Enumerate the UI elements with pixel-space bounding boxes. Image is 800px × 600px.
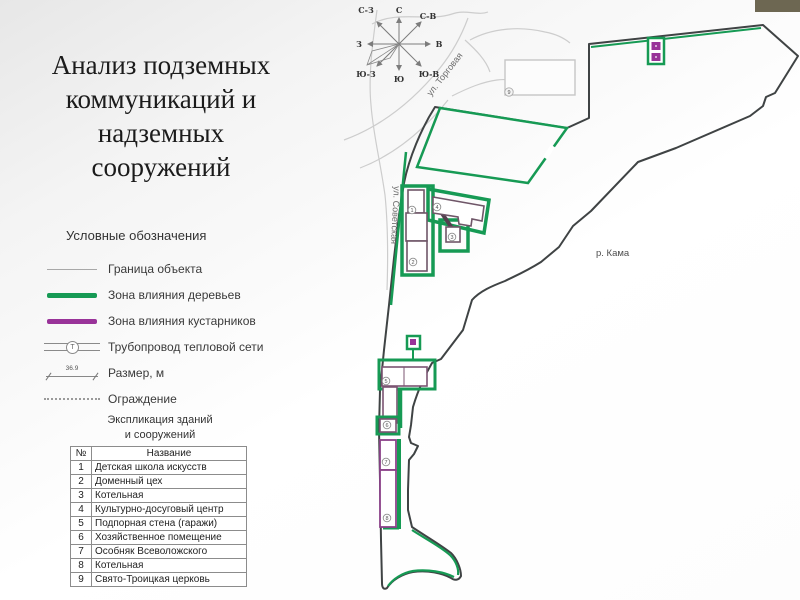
shrub-zone-mark [410, 339, 416, 345]
building-1-school [406, 213, 427, 241]
compass-ray-ne [399, 22, 421, 44]
building-marker: 3 [448, 233, 456, 241]
compass-label-east: В [436, 39, 443, 49]
marker-number: 5 [384, 379, 387, 385]
building-marker: 6 [383, 421, 391, 429]
building-9-church [505, 60, 575, 95]
parallelogram-gap [545, 146, 553, 158]
compass-label-northeast: С-В [420, 11, 437, 21]
compass-ray-sw [377, 44, 399, 66]
building-marker: 2 [409, 258, 417, 266]
building-marker: 4 [433, 203, 441, 211]
building-marker: 5 [382, 377, 390, 385]
compass-label-west: З [356, 39, 362, 49]
marker-number: 1 [410, 208, 413, 214]
marker-number: 4 [435, 205, 438, 211]
compass-label-south: Ю [394, 74, 404, 84]
compass-label-southwest: Ю-З [356, 69, 376, 79]
compass-ray-nw [377, 22, 399, 44]
marker-number: 6 [385, 423, 388, 429]
building-2-blast-shop [407, 241, 427, 271]
building-marker: 7 [382, 458, 390, 466]
compass-label-north: С [396, 5, 402, 15]
site-plan-map: С С-В В Ю-В Ю Ю-З З С-З [0, 0, 800, 600]
street-label-sovetskaya: ул. Советская [389, 186, 402, 245]
river-label-kama: р. Кама [596, 248, 630, 259]
marker-number: 7 [384, 460, 387, 466]
building-marker: 8 [383, 514, 391, 522]
marker-number: 2 [411, 260, 414, 266]
tree-shrub-plot [648, 38, 664, 64]
building-marker: 9 [505, 88, 513, 96]
marker-number: 8 [385, 516, 388, 522]
shrub-mark-dot [655, 45, 657, 47]
presentation-slide: Анализ подземных коммуникаций и надземны… [0, 0, 800, 600]
marker-number: 9 [507, 90, 510, 96]
compass-label-northwest: С-З [358, 5, 374, 15]
tree-zone-lines [388, 28, 761, 586]
shrub-mark-dot [655, 56, 657, 58]
compass-ray-se [399, 44, 421, 66]
site-boundary-line [379, 25, 798, 589]
building-markers: 1 2 3 4 5 6 7 [382, 88, 513, 522]
tree-zone-parallelogram [417, 108, 567, 183]
building-marker: 1 [408, 206, 416, 214]
marker-number: 3 [450, 235, 453, 241]
